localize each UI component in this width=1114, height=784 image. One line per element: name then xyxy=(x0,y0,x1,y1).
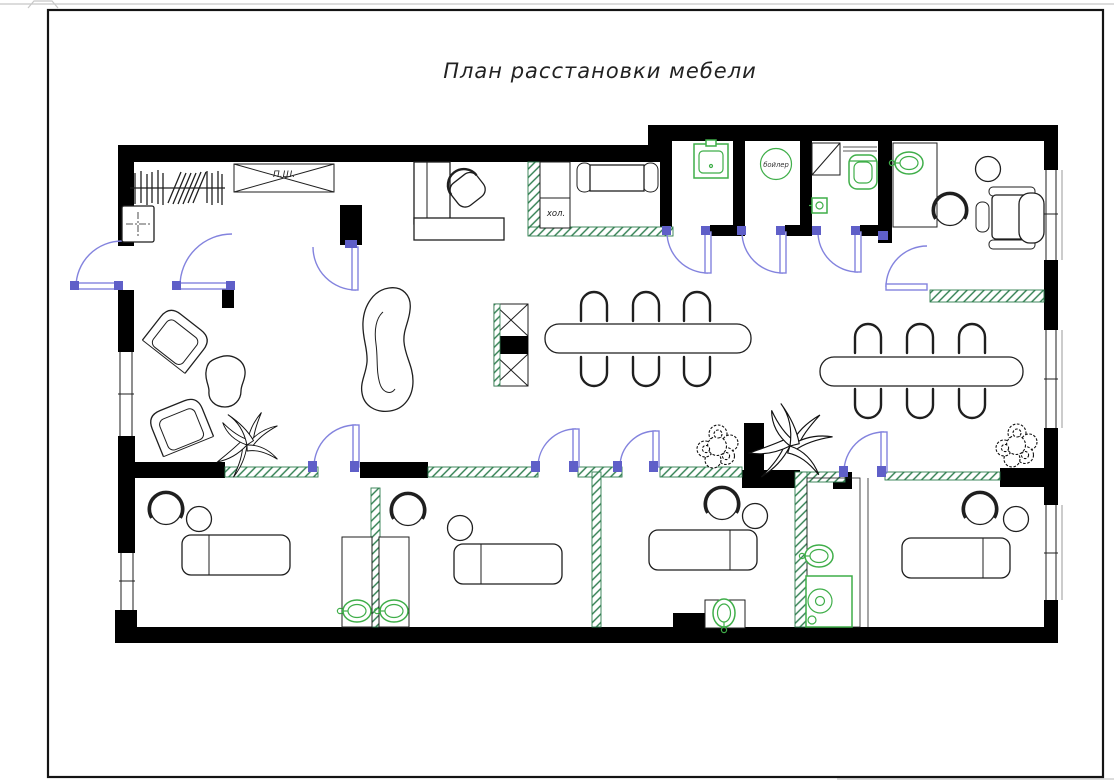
boiler-label: бойлер xyxy=(763,161,789,169)
furniture xyxy=(122,143,1044,628)
fridge-label: хол. xyxy=(546,209,565,219)
door-wardrobe-area xyxy=(313,240,358,290)
plan-title: План расстановки мебели xyxy=(443,59,757,83)
conference-table-2 xyxy=(820,324,1023,418)
dining-set xyxy=(577,163,658,192)
conference-table-1 xyxy=(545,292,751,386)
floor-plan-svg: План расстановки мебели xyxy=(0,0,1114,784)
bath-sink-square xyxy=(694,140,728,178)
appliance-square xyxy=(122,206,154,242)
window-left-1 xyxy=(118,352,134,436)
wall-cabinet-label: П.Ш. xyxy=(273,170,295,180)
door-office xyxy=(878,231,927,290)
door-room-3 xyxy=(613,431,659,472)
treatment-room-2 xyxy=(391,493,562,584)
treatment-room-4 xyxy=(902,492,1029,578)
window-right-3 xyxy=(1044,505,1062,600)
office-sink xyxy=(889,152,923,174)
coffee-table xyxy=(206,356,245,407)
door-boiler-room xyxy=(737,226,786,273)
door-room-4 xyxy=(839,432,887,477)
bush-plant-center xyxy=(697,425,738,468)
door-room-2 xyxy=(531,429,579,472)
window-left-2 xyxy=(119,553,135,610)
door-entry-outward xyxy=(70,241,123,290)
door-vestibule xyxy=(172,234,235,290)
door-wc-1 xyxy=(662,226,711,273)
drawing-canvas: План расстановки мебели xyxy=(0,0,1114,784)
office-armchair xyxy=(976,187,1044,249)
hanger-rack xyxy=(130,170,225,205)
treatment-room-3 xyxy=(649,487,768,628)
reception-desk xyxy=(414,162,504,240)
page-chrome xyxy=(0,1,1114,779)
small-wall-sink xyxy=(809,198,827,213)
door-room-1 xyxy=(308,425,359,472)
shower-tray xyxy=(806,576,852,627)
chaise-longue xyxy=(362,288,413,412)
door-shower-wc xyxy=(812,226,861,272)
storage-column xyxy=(494,304,528,386)
toilet xyxy=(849,155,877,189)
window-right-1 xyxy=(1044,170,1062,260)
window-right-2 xyxy=(1044,330,1062,428)
bush-plant-right xyxy=(996,424,1037,467)
